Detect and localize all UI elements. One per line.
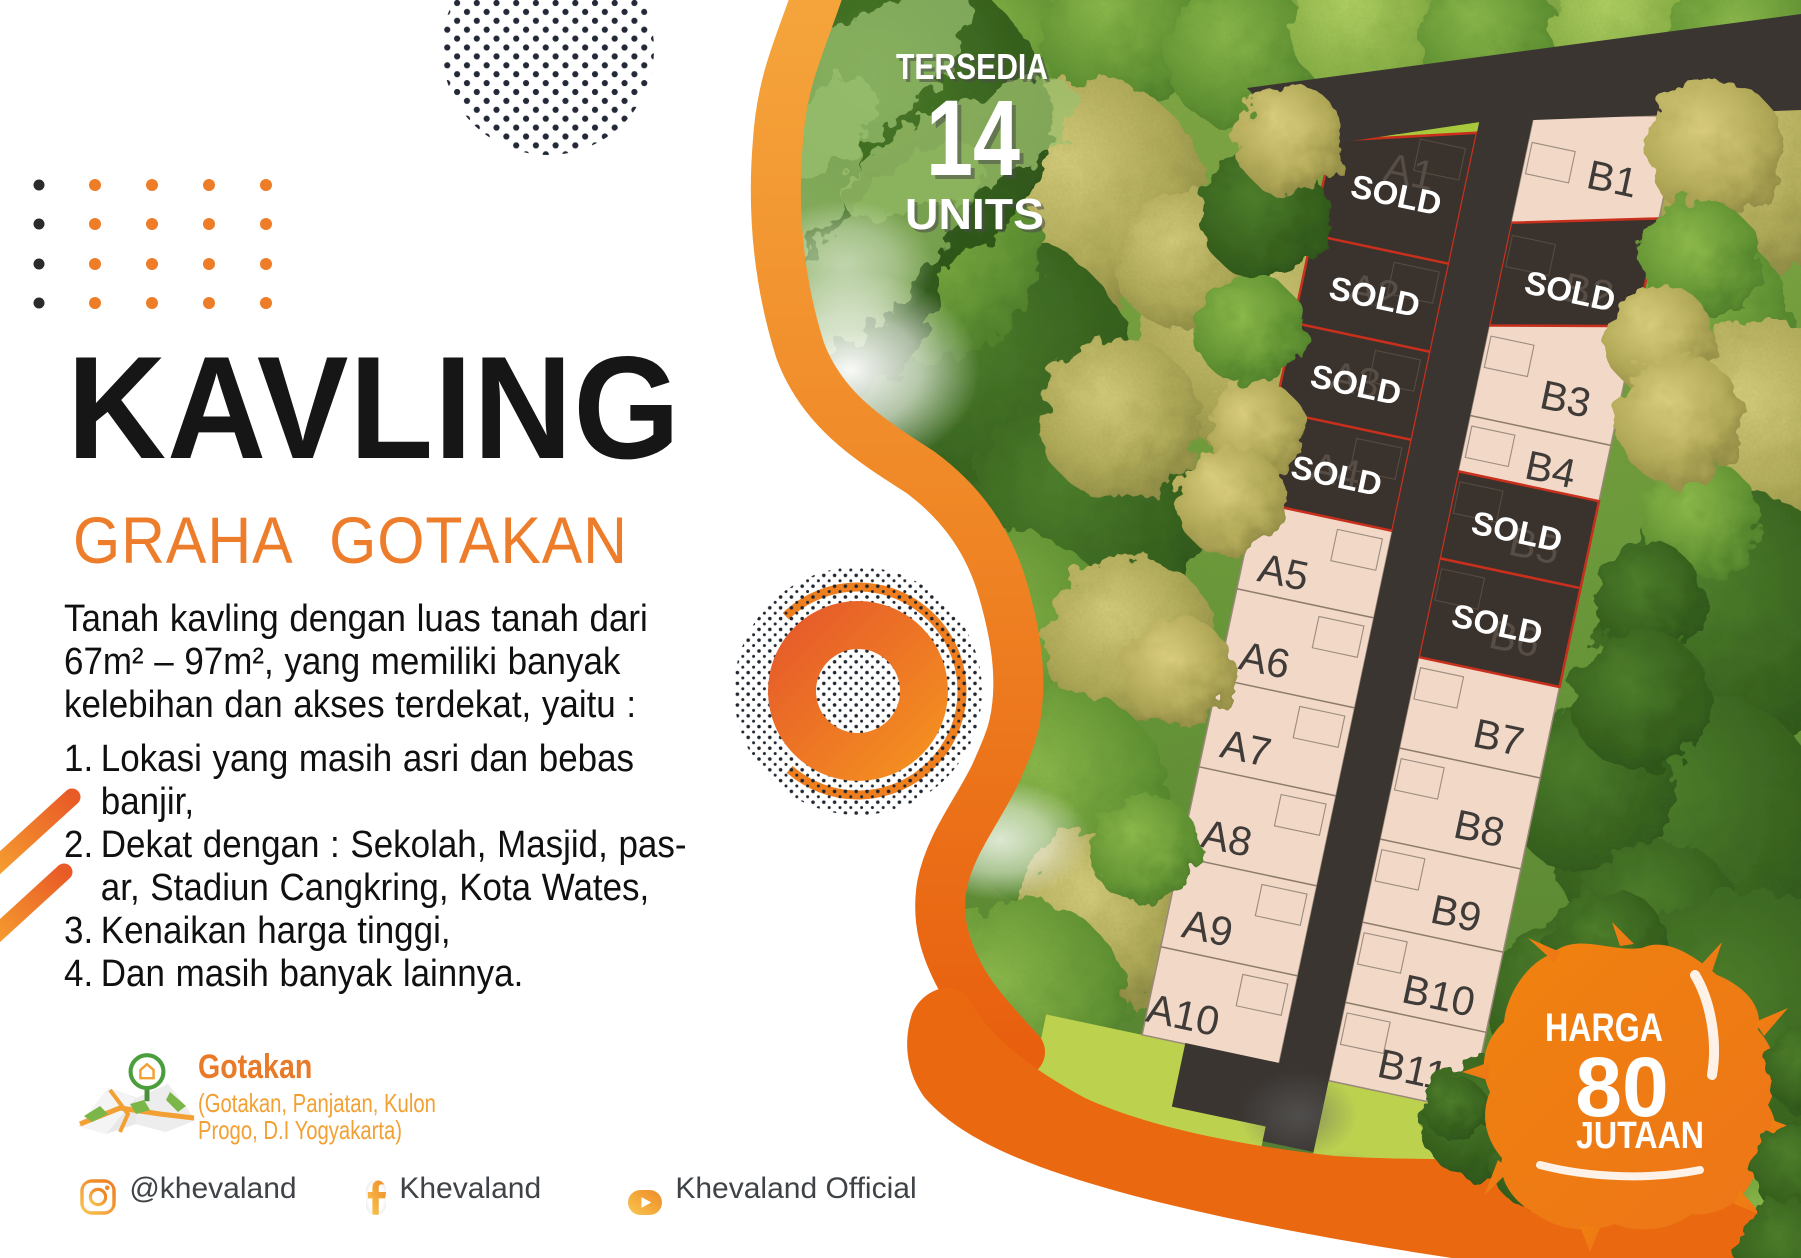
svg-text:14: 14 [926,77,1020,198]
svg-text:UNITS: UNITS [905,190,1044,239]
svg-text:JUTAAN: JUTAAN [1576,1115,1704,1157]
